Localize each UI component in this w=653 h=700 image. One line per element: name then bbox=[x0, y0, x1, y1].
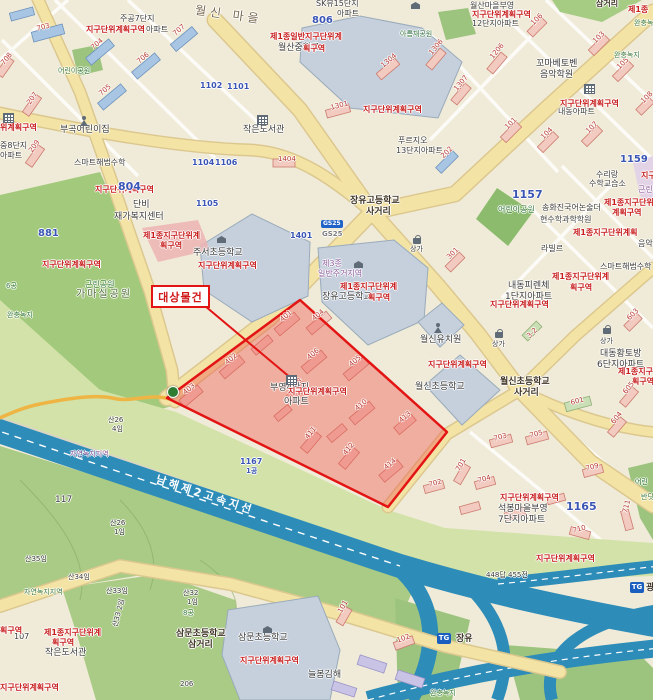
map-base bbox=[0, 0, 653, 700]
target-property-label[interactable]: 대상물건 bbox=[151, 285, 210, 308]
target-property-text: 대상물건 bbox=[158, 289, 202, 305]
school-sammun-elementary bbox=[222, 596, 340, 700]
map-canvas[interactable]: 주공7단지지구단위계획구역아파트703707704706705708어린이공원2… bbox=[0, 0, 653, 700]
